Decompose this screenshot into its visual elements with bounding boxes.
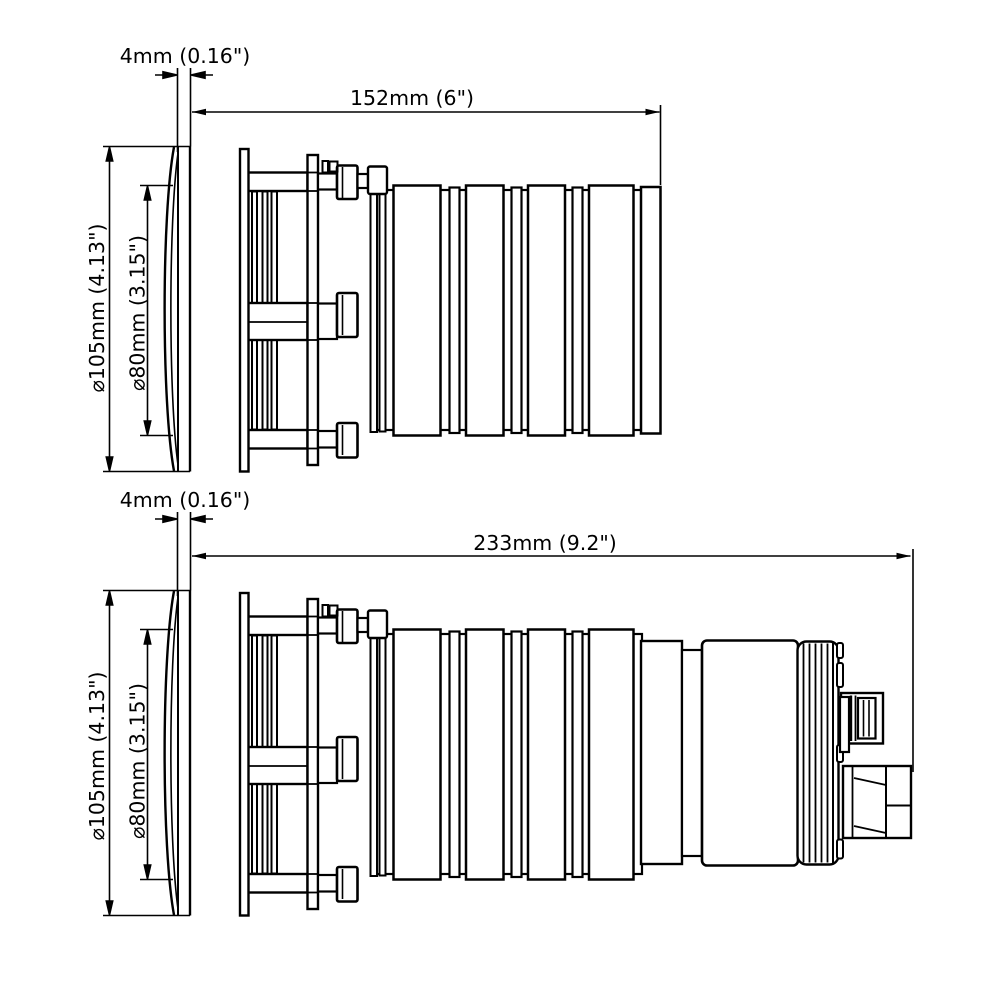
technical-drawing-page: 152mm (6") 4mm (0.16") ⌀105mm (4.13") ⌀8… (0, 0, 1000, 1000)
dim-label-length-bottom: 233mm (9.2") (473, 531, 617, 555)
dim-label-outer-dia-top: ⌀105mm (4.13") (85, 224, 109, 393)
upper-connector (840, 693, 883, 752)
dim-label-length-top: 152mm (6") (350, 86, 474, 110)
dim-label-flange-top: 4mm (0.16") (120, 44, 251, 68)
rear-body (641, 641, 843, 866)
technical-drawing: 152mm (6") 4mm (0.16") ⌀105mm (4.13") ⌀8… (0, 0, 1000, 1000)
dim-label-outer-dia-bottom: ⌀105mm (4.13") (85, 672, 109, 841)
lower-connector (843, 766, 911, 838)
dim-label-flange-bottom: 4mm (0.16") (120, 488, 251, 512)
dim-label-body-dia-top: ⌀80mm (3.15") (126, 235, 150, 391)
top-view-endcap (641, 187, 661, 434)
dim-label-body-dia-bottom: ⌀80mm (3.15") (126, 683, 150, 839)
